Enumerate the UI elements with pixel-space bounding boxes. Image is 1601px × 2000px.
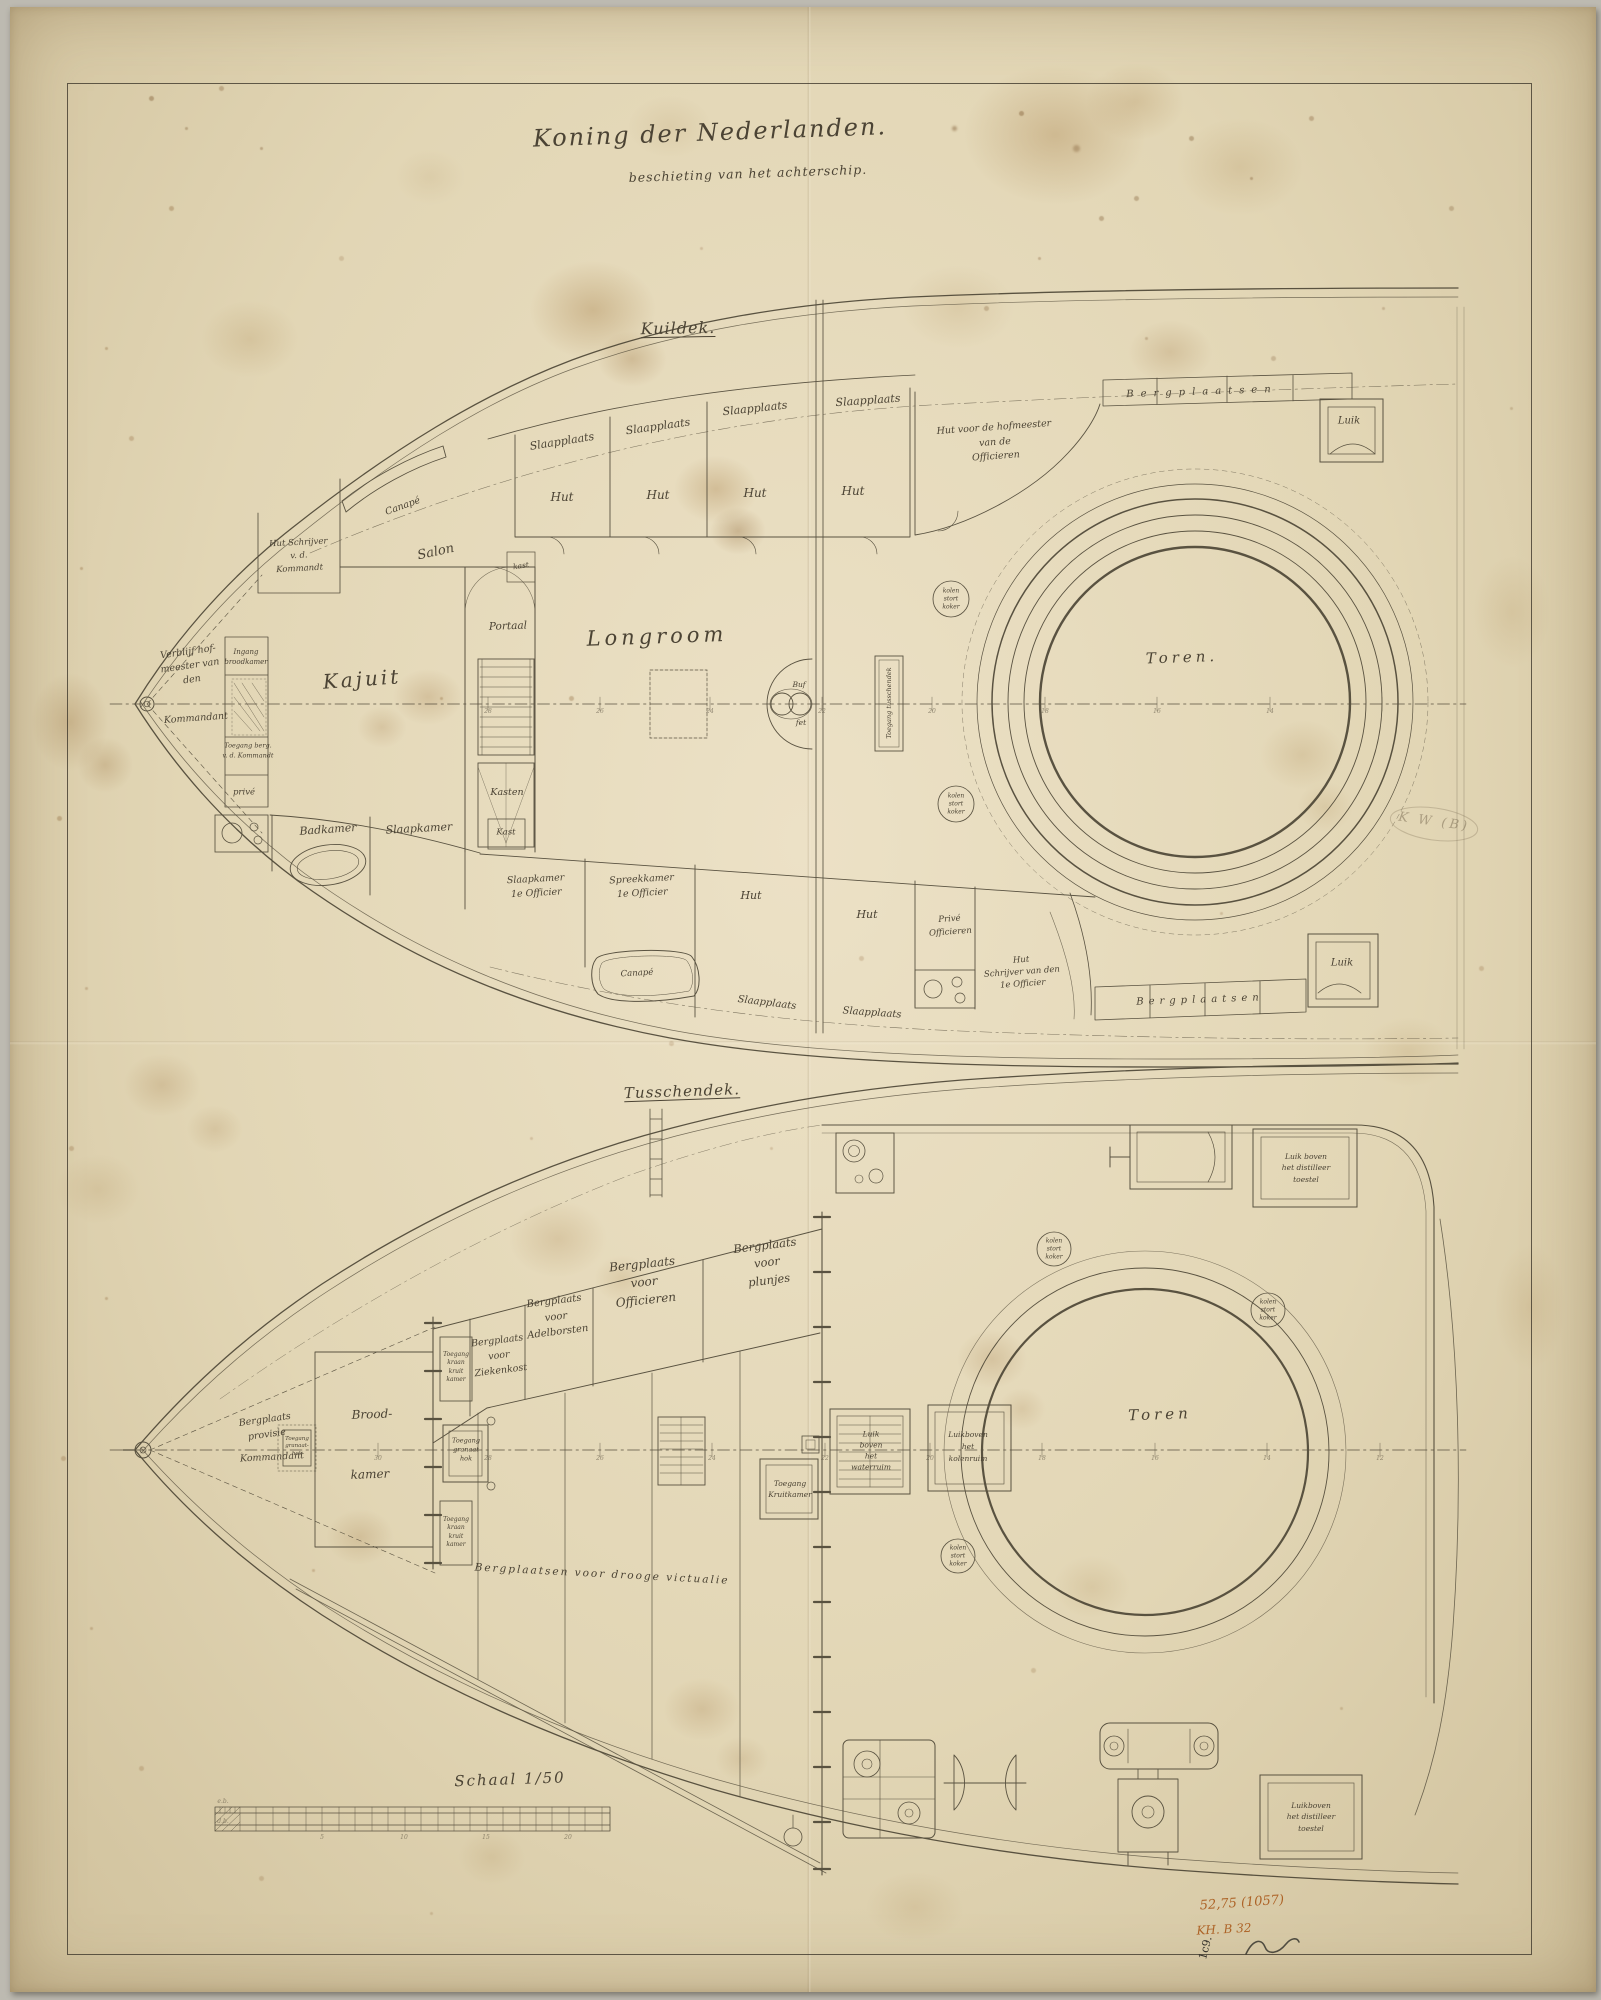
ship-plan-sheet: SlaapplaatsSlaapplaatsSlaapplaatsSlaappl…	[0, 0, 1601, 2000]
coal-chute-circle	[1037, 1232, 1071, 1266]
stairs-tusschendek	[658, 1417, 705, 1485]
kuildek-plan	[110, 288, 1466, 1067]
canape-sofa-bottom	[592, 950, 699, 1001]
plan-line-art	[10, 7, 1601, 2000]
coal-hold-hatch	[928, 1405, 1011, 1491]
coal-chute-circle	[933, 581, 969, 617]
distilling-hatch-top	[1253, 1129, 1357, 1207]
ink-scribble	[1246, 1939, 1299, 1954]
turret-rings-kuildek	[962, 469, 1428, 935]
tusschendek-plan	[110, 1064, 1466, 1884]
coal-chute-circle	[941, 1539, 975, 1573]
galley-sink	[836, 1133, 894, 1193]
shell-room-access	[443, 1425, 488, 1482]
paper-sheet: SlaapplaatsSlaapplaatsSlaapplaatsSlaappl…	[10, 7, 1596, 1992]
powder-room-access	[760, 1459, 818, 1519]
scale-bar	[215, 1807, 610, 1831]
berth-cot	[1130, 1125, 1232, 1189]
windlass-machinery	[784, 1740, 1026, 1846]
pump-machinery	[1100, 1723, 1218, 1865]
coal-chute-circle	[1251, 1293, 1285, 1327]
coal-chute-circle	[938, 786, 974, 822]
distilling-hatch-bottom	[1260, 1775, 1362, 1859]
